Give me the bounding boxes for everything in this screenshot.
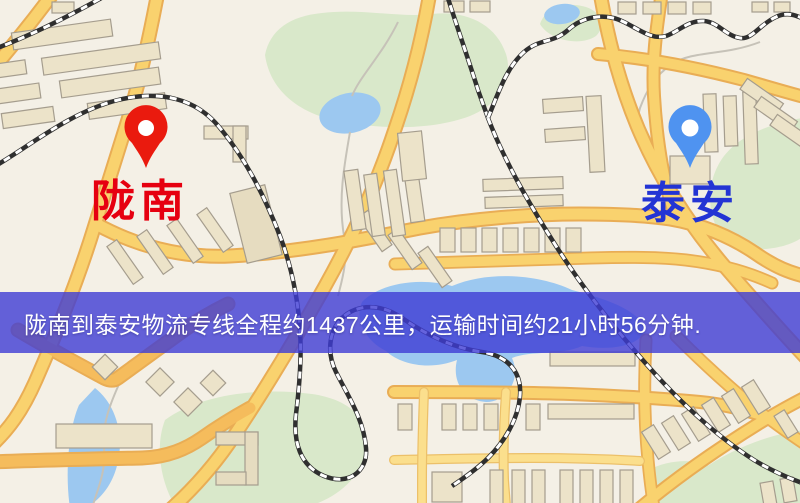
route-banner-text: 陇南到泰安物流专线全程约1437公里，运输时间约21小时56分钟. bbox=[24, 306, 701, 340]
origin-pin-icon bbox=[125, 105, 168, 168]
map-canvas: 陇南 泰安 bbox=[0, 0, 800, 503]
map-screenshot: 陇南 泰安 陇南到泰安物流专线全程约1437公里，运输时间约21小时56分钟. bbox=[0, 0, 800, 503]
origin-label: 陇南 bbox=[91, 177, 189, 226]
destination-label: 泰安 bbox=[641, 179, 739, 228]
route-banner: 陇南到泰安物流专线全程约1437公里，运输时间约21小时56分钟. bbox=[0, 292, 800, 353]
